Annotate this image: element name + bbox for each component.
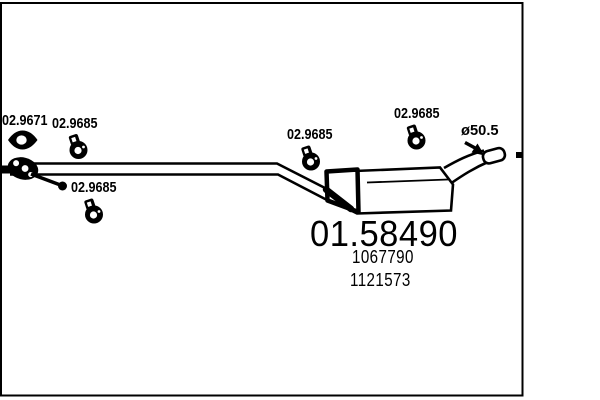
exhaust-diagram-canvas: 02.9671 02.9685 02.9685 02.9685 02.9685 …	[0, 0, 600, 400]
pipe-end-marker	[516, 152, 522, 158]
part-label-clamp-middle: 02.9685	[287, 127, 333, 142]
ring-clamp-icon	[406, 124, 425, 149]
diagram-art	[0, 0, 600, 400]
part-label-clamp-rear: 02.9685	[394, 106, 440, 121]
eye-gasket-icon	[8, 131, 38, 150]
ring-clamp-icon	[301, 145, 320, 170]
ring-clamp-icon	[68, 134, 87, 159]
muffler	[326, 168, 453, 214]
oe-number-1: 1067790	[352, 248, 414, 266]
diameter-label: ø50.5	[461, 123, 499, 138]
part-label-clamp-front-upper: 02.9685	[52, 116, 98, 131]
pipe-flange-icon	[5, 154, 40, 183]
hanger-rod-icon	[31, 174, 67, 191]
ring-clamp-icon	[84, 198, 103, 223]
oe-number-2: 1121573	[350, 271, 411, 289]
part-label-clamp-front-lower: 02.9685	[71, 180, 117, 195]
exhaust-pipe	[10, 164, 327, 201]
part-label-gasket: 02.9671	[2, 113, 48, 128]
tailpipe-tip	[482, 147, 506, 165]
